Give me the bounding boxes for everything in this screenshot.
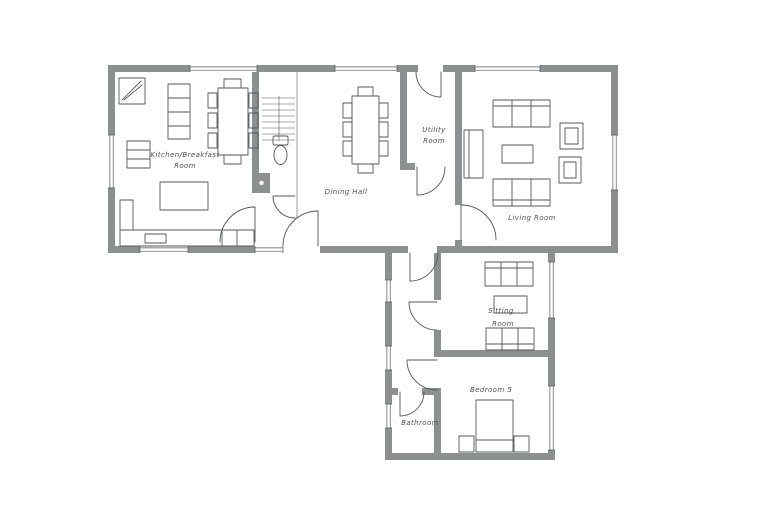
window: [335, 65, 397, 72]
window: [548, 262, 555, 318]
bathroom-label: Bathroom: [401, 419, 439, 427]
window: [140, 246, 188, 253]
cupboard-knob: [259, 181, 263, 185]
window: [548, 386, 555, 450]
window: [190, 65, 257, 72]
window: [385, 404, 392, 428]
utility-label-line2: Room: [423, 137, 445, 145]
window: [385, 346, 392, 370]
floor-plan-canvas: Kitchen/Breakfast Room Dining Hall Utili…: [0, 0, 757, 520]
window: [611, 135, 618, 190]
living-room-label: Living Room: [508, 214, 556, 222]
bedroom5-label: Bedroom 5: [470, 386, 512, 394]
window: [475, 65, 540, 72]
kitchen-label-line2: Room: [174, 162, 196, 170]
floor-plan-drawing: Kitchen/Breakfast Room Dining Hall Utili…: [0, 0, 757, 520]
window: [108, 135, 115, 188]
sitting-room-label: Sitting: [488, 307, 514, 315]
dining-hall-label: Dining Hall: [325, 188, 368, 196]
window: [255, 246, 283, 253]
sitting-room-label-line2: Room: [492, 320, 514, 328]
kitchen-label: Kitchen/Breakfast: [151, 151, 220, 159]
utility-label: Utility: [422, 126, 446, 134]
window: [385, 280, 392, 302]
